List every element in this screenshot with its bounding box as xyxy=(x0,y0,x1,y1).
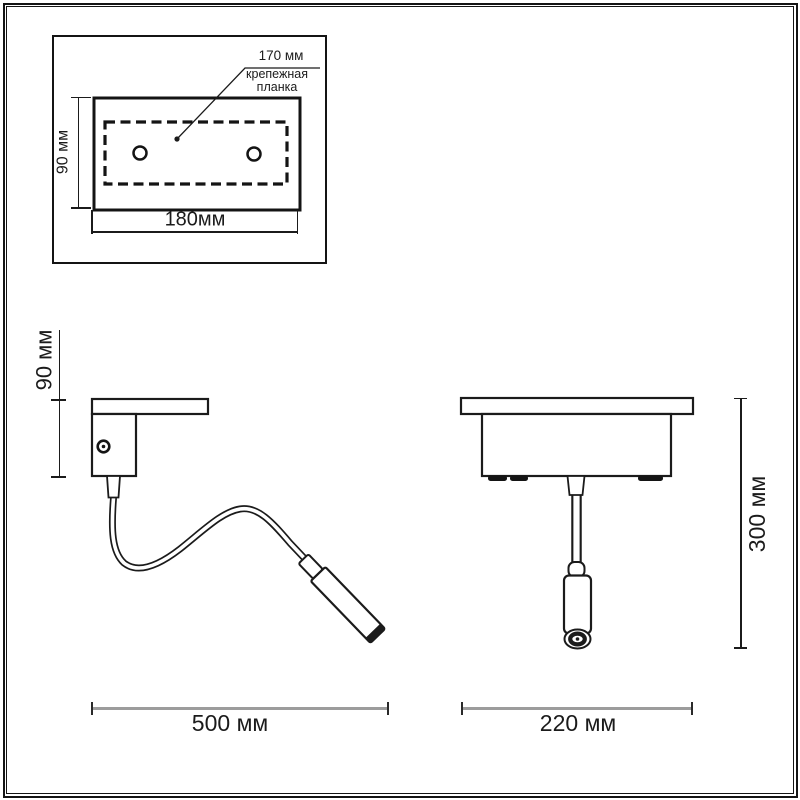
front-arm-stem xyxy=(568,476,585,495)
top-view-height-dim-tick-bottom xyxy=(71,207,91,209)
side-height-dim-tick-top xyxy=(51,399,66,401)
bracket-callout-label: крепежная планка xyxy=(246,68,308,94)
lamp-lens-center xyxy=(576,637,580,641)
bracket-callout-line2: планка xyxy=(246,81,308,94)
front-height-dim-line xyxy=(740,398,742,648)
side-width-label: 500 мм xyxy=(192,711,268,735)
front-lamp-head xyxy=(564,576,591,634)
front-height-dim-tick-bottom xyxy=(734,647,747,649)
side-lamp-head-group xyxy=(296,552,385,643)
top-view-width-dim-ext-right xyxy=(297,210,299,234)
side-height-label: 90 мм xyxy=(32,330,55,391)
gooseneck-arm-outline xyxy=(112,498,307,568)
front-width-dim-tick-left xyxy=(461,702,463,715)
top-view-height-dim-line xyxy=(78,97,80,208)
plate-width-label: 180мм xyxy=(165,210,226,231)
side-height-dim-line xyxy=(59,330,61,478)
mount-foot-left-2 xyxy=(510,476,528,482)
front-wall-plate xyxy=(461,398,693,414)
front-height-label: 300 мм xyxy=(745,476,769,552)
hole-distance-label: 170 мм xyxy=(259,49,304,63)
side-width-dim-tick-right xyxy=(387,702,389,715)
mount-foot-left-1 xyxy=(488,476,507,482)
front-view-drawing xyxy=(450,390,710,660)
top-view-width-dim-ext-left xyxy=(91,210,93,234)
screw-hole-left xyxy=(134,147,147,160)
top-view-width-dim-line xyxy=(92,231,298,233)
mounting-plate-outline xyxy=(94,98,300,210)
front-mount-box xyxy=(482,414,671,476)
product-dimension-diagram: 170 мм крепежная планка 90 мм 180мм 90 м… xyxy=(0,0,800,800)
plate-height-label: 90 мм xyxy=(56,130,73,174)
side-arm-stem xyxy=(107,476,120,498)
side-view-drawing xyxy=(80,390,410,670)
mount-foot-right xyxy=(638,476,663,482)
side-width-dim-tick-left xyxy=(91,702,93,715)
side-wall-plate xyxy=(92,399,208,414)
front-height-dim-tick-top xyxy=(734,398,747,400)
front-width-dim-tick-right xyxy=(691,702,693,715)
power-switch-dot xyxy=(102,445,106,449)
side-height-dim-tick-bottom xyxy=(51,476,66,478)
front-width-label: 220 мм xyxy=(540,711,616,735)
top-view-height-dim-tick-top xyxy=(71,97,91,99)
screw-hole-right xyxy=(248,148,261,161)
callout-dot xyxy=(174,136,179,141)
